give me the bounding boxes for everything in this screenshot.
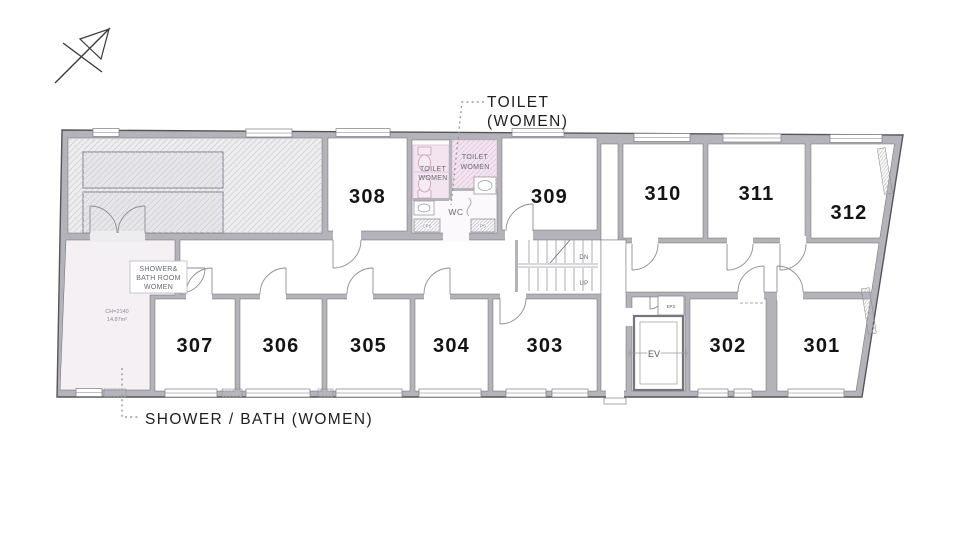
callout-shower-label: SHOWER / BATH (WOMEN) <box>145 411 373 428</box>
stairs-up-label: UP <box>580 281 589 287</box>
room-305-label: 305 <box>350 335 387 357</box>
room-309-floor <box>502 138 597 230</box>
eps-shaft: EPS <box>658 296 684 315</box>
cps-label: CPS <box>422 224 431 229</box>
room-308-floor <box>328 138 407 231</box>
toilet-left-label-1: TOILET <box>420 166 447 173</box>
room-301-label: 301 <box>804 335 841 357</box>
toilet-left-label-2: WOMEN <box>418 175 447 182</box>
hatched-area-boxes <box>83 152 223 233</box>
elevator: EV <box>628 316 688 390</box>
callout-toilet-line2: (WOMEN) <box>487 113 568 130</box>
room-302-label: 302 <box>710 335 747 357</box>
room-312-label: 312 <box>831 202 868 224</box>
elevator-label: EV <box>648 349 660 359</box>
vestibule-floor <box>601 240 626 391</box>
room-307-label: 307 <box>177 335 214 357</box>
stairs-dn-label: DN <box>579 255 588 261</box>
room-311-label: 311 <box>739 183 775 205</box>
ceiling-height-label: CH=2140 <box>105 309 128 315</box>
room-306-label: 306 <box>263 335 300 357</box>
shower-room-label-3: WOMEN <box>144 284 173 291</box>
toilet-right-label-2: WOMEN <box>460 164 489 171</box>
north-arrow-icon <box>55 28 110 83</box>
room-310-label: 310 <box>645 183 682 205</box>
room-304-label: 304 <box>433 335 470 357</box>
wc-label: WC <box>448 207 463 217</box>
floor-plan-canvas: DN UP EV EPS <box>0 0 960 540</box>
callout-toilet-line1: TOILET <box>487 94 549 111</box>
room-308-label: 308 <box>349 186 386 208</box>
eps-label: EPS <box>667 304 676 309</box>
floor-plan-page: DN UP EV EPS <box>0 0 960 540</box>
room-303-label: 303 <box>527 335 564 357</box>
room-309-label: 309 <box>531 186 568 208</box>
entry-step <box>604 398 626 404</box>
void-strip <box>601 144 618 240</box>
ps-label: PS <box>480 224 486 229</box>
shower-room-label-1: SHOWER& <box>139 266 177 273</box>
double-door-opening <box>90 231 145 242</box>
toilet-right-label-1: TOILET <box>462 154 489 161</box>
shower-room-label-2: BATH ROOM <box>136 275 181 282</box>
floor-area-label: 14.87m² <box>107 317 127 323</box>
